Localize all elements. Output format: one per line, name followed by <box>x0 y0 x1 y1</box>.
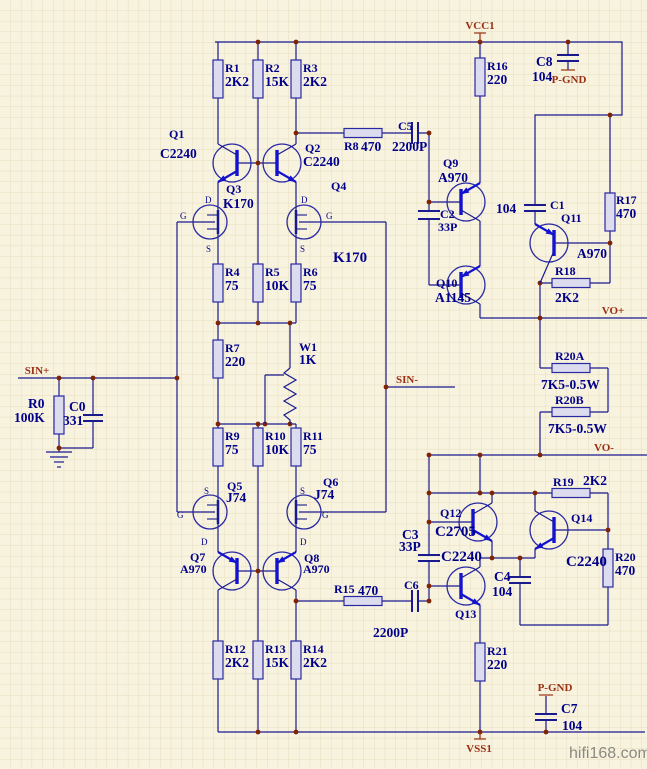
port-label: SIN+ <box>25 365 50 377</box>
port-label: P-GND <box>552 74 587 86</box>
pin-source: S <box>204 486 209 496</box>
pin-gate: G <box>180 211 187 221</box>
resistor-ref: R6 <box>303 265 318 279</box>
resistor-value: 220 <box>487 72 508 87</box>
pin-source: S <box>300 486 305 496</box>
transistor-ref: Q2 <box>305 141 320 155</box>
cap-value: 104 <box>496 201 517 216</box>
jfet-value: J74 <box>226 490 247 505</box>
transistor-ref: Q9 <box>443 156 458 170</box>
cap-value: 104 <box>532 69 553 84</box>
transistor-value: C2240 <box>566 554 607 570</box>
port-sin-plus: SIN+ <box>25 365 50 377</box>
resistor-ref: R21 <box>487 644 508 658</box>
cap-value: 104 <box>562 718 583 733</box>
jfet-ref: Q4 <box>331 179 346 193</box>
resistor-ref: R7 <box>225 341 240 355</box>
resistor-ref: R20A <box>555 349 585 363</box>
resistor-value: 470 <box>616 206 637 221</box>
pin-drain: D <box>201 537 208 547</box>
transistor-value: A1145 <box>435 290 471 305</box>
watermark: hifi168.com <box>569 745 647 762</box>
resistor-ref: R0 <box>28 396 45 411</box>
resistor-value: 2K2 <box>303 74 327 89</box>
resistor-value: 10K <box>265 442 290 457</box>
resistor-value: 220 <box>487 657 508 672</box>
cap-ref: C7 <box>561 701 578 716</box>
transistor-value: A970 <box>577 246 607 261</box>
resistor-value: 7K5-0.5W <box>541 377 600 392</box>
resistor-value: 75 <box>225 278 239 293</box>
port-label: VO- <box>594 442 614 454</box>
resistor-ref: R15 <box>334 582 355 596</box>
port-label: VO+ <box>602 305 625 317</box>
resistor-value: 10K <box>265 278 290 293</box>
port-sin-minus: SIN- <box>396 374 418 386</box>
transistor-value: A970 <box>438 170 468 185</box>
resistor-ref: R16 <box>487 59 508 73</box>
transistor-ref: Q11 <box>561 211 582 225</box>
resistor-value: 2K2 <box>303 655 327 670</box>
resistor-ref: R17 <box>616 193 637 207</box>
pot-value: 1K <box>299 352 317 367</box>
transistor-ref: Q13 <box>455 607 476 621</box>
transistor-ref: Q10 <box>436 276 457 290</box>
pin-gate: G <box>322 510 329 520</box>
resistor-value: 15K <box>265 74 290 89</box>
schematic-svg: R12K2 R215K R32K2 R475 R510K R675 R7220 … <box>0 0 647 769</box>
cap-ref: C1 <box>550 198 565 212</box>
resistor-ref: R8 <box>344 139 359 153</box>
cap-value: 2200P <box>373 625 408 640</box>
transistor-value: C2240 <box>160 146 197 161</box>
schematic-canvas: R12K2 R215K R32K2 R475 R510K R675 R7220 … <box>0 0 647 769</box>
jfet-value: K170 <box>333 250 367 266</box>
cap-ref: C5 <box>398 119 413 133</box>
resistor-R8: R8470 <box>344 129 382 155</box>
transistor-ref: Q14 <box>571 511 592 525</box>
pin-source: S <box>300 244 305 254</box>
pin-gate: G <box>326 211 333 221</box>
resistor-ref: R11 <box>303 429 323 443</box>
resistor-value: 75 <box>225 442 239 457</box>
cap-value: 33P <box>438 220 457 234</box>
cap-value: 331 <box>63 413 84 428</box>
resistor-ref: R12 <box>225 642 246 656</box>
jfet-ref: Q3 <box>226 182 241 196</box>
transistor-ref: Q12 <box>440 506 461 520</box>
resistor-ref: R13 <box>265 642 286 656</box>
transistor-value: C2705 <box>435 524 476 540</box>
resistor-ref: R19 <box>553 475 574 489</box>
resistor-ref: R5 <box>265 265 280 279</box>
resistor-value: 75 <box>303 442 317 457</box>
resistor-ref: R20 <box>615 550 636 564</box>
resistor-ref: R10 <box>265 429 286 443</box>
resistor-value: 75 <box>303 278 317 293</box>
cap-ref: C2 <box>440 207 455 221</box>
pin-gate: G <box>177 510 184 520</box>
resistor-value: 470 <box>358 583 379 598</box>
transistor-ref: Q1 <box>169 127 184 141</box>
resistor-ref: R14 <box>303 642 324 656</box>
pin-drain: D <box>205 195 212 205</box>
resistor-ref: R20B <box>555 393 584 407</box>
pin-drain: D <box>301 195 308 205</box>
resistor-ref: R2 <box>265 61 280 75</box>
resistor-value: 2K2 <box>225 74 249 89</box>
resistor-value: 2K2 <box>555 290 579 305</box>
resistor-value: 470 <box>615 563 636 578</box>
port-label: VCC1 <box>465 20 494 32</box>
transistor-value: C2240 <box>441 549 482 565</box>
resistor-ref: R3 <box>303 61 318 75</box>
transistor-value: A970 <box>303 562 330 576</box>
jfet-value: K170 <box>223 196 254 211</box>
resistor-value: 470 <box>361 139 382 154</box>
cap-value: 2200P <box>392 139 427 154</box>
port-pgnd-bottom: P-GND <box>538 682 573 695</box>
pin-source: S <box>206 244 211 254</box>
cap-ref: C0 <box>69 399 86 414</box>
port-label: SIN- <box>396 374 418 386</box>
transistor-value: C2240 <box>303 154 340 169</box>
cap-ref: C6 <box>404 578 419 592</box>
cap-ref: C4 <box>494 569 511 584</box>
port-label: VSS1 <box>466 743 492 755</box>
resistor-value: 220 <box>225 354 246 369</box>
resistor-ref: R9 <box>225 429 240 443</box>
resistor-ref: R4 <box>225 265 240 279</box>
jfet-value: J74 <box>314 487 335 502</box>
resistor-value: 15K <box>265 655 290 670</box>
transistor-value: A970 <box>180 562 207 576</box>
resistor-value: 2K2 <box>225 655 249 670</box>
port-label: P-GND <box>538 682 573 694</box>
resistor-ref: R1 <box>225 61 240 75</box>
resistor-value: 100K <box>14 410 45 425</box>
resistor-value: 2K2 <box>583 473 607 488</box>
cap-ref: C8 <box>536 54 553 69</box>
resistor-ref: R18 <box>555 264 576 278</box>
cap-value: 33P <box>399 539 421 554</box>
port-vo-minus: VO- <box>594 442 614 454</box>
port-vo-plus: VO+ <box>602 305 625 317</box>
pin-drain: D <box>300 537 307 547</box>
cap-value: 104 <box>492 584 513 599</box>
resistor-value: 7K5-0.5W <box>548 421 607 436</box>
